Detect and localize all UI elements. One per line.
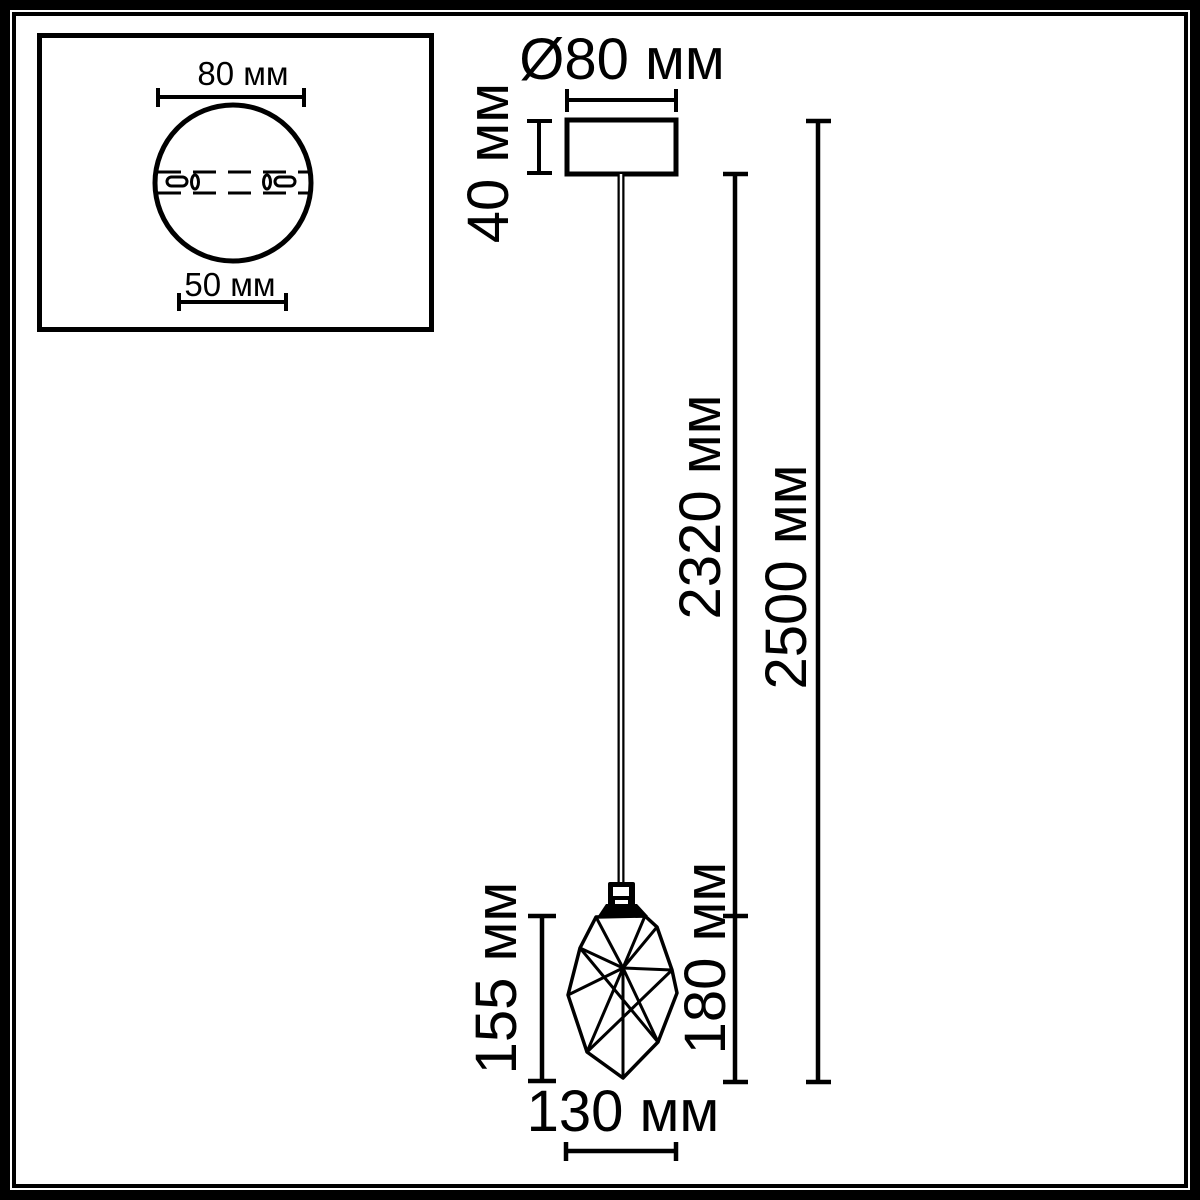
canopy-diameter-dimension-line bbox=[567, 89, 676, 112]
ceiling-canopy bbox=[567, 120, 676, 174]
shade-height-label: 155 мм bbox=[465, 868, 529, 1088]
lamp-socket bbox=[598, 882, 648, 916]
shade-width-label: 130 мм bbox=[513, 1082, 733, 1142]
shade-assembly-height-label: 180 мм bbox=[674, 848, 738, 1068]
canopy-diameter-label: Ø80 мм bbox=[512, 30, 732, 90]
diagram-canvas: Ø80 мм 40 мм 2320 мм 2500 мм 155 мм 180 … bbox=[0, 0, 1200, 1200]
canopy-height-label: 40 мм bbox=[457, 63, 521, 263]
mount-hole-left bbox=[192, 175, 199, 189]
mount-hole-right bbox=[264, 175, 271, 189]
dimension-drawing bbox=[0, 0, 1200, 1200]
inset-plate-diameter-label: 80 мм bbox=[163, 55, 323, 91]
canopy-height-dimension-line bbox=[527, 121, 552, 173]
total-height-label: 2500 мм bbox=[755, 447, 819, 707]
inset-mount-spacing-label: 50 мм bbox=[150, 266, 310, 302]
cord-length-label: 2320 мм bbox=[669, 377, 733, 637]
crystal-shade bbox=[568, 916, 677, 1078]
mount-slot-right bbox=[275, 177, 295, 186]
shade-width-dimension-line bbox=[566, 1142, 676, 1161]
mount-slot-left bbox=[167, 177, 187, 186]
shade-height-dimension-line bbox=[528, 916, 556, 1081]
